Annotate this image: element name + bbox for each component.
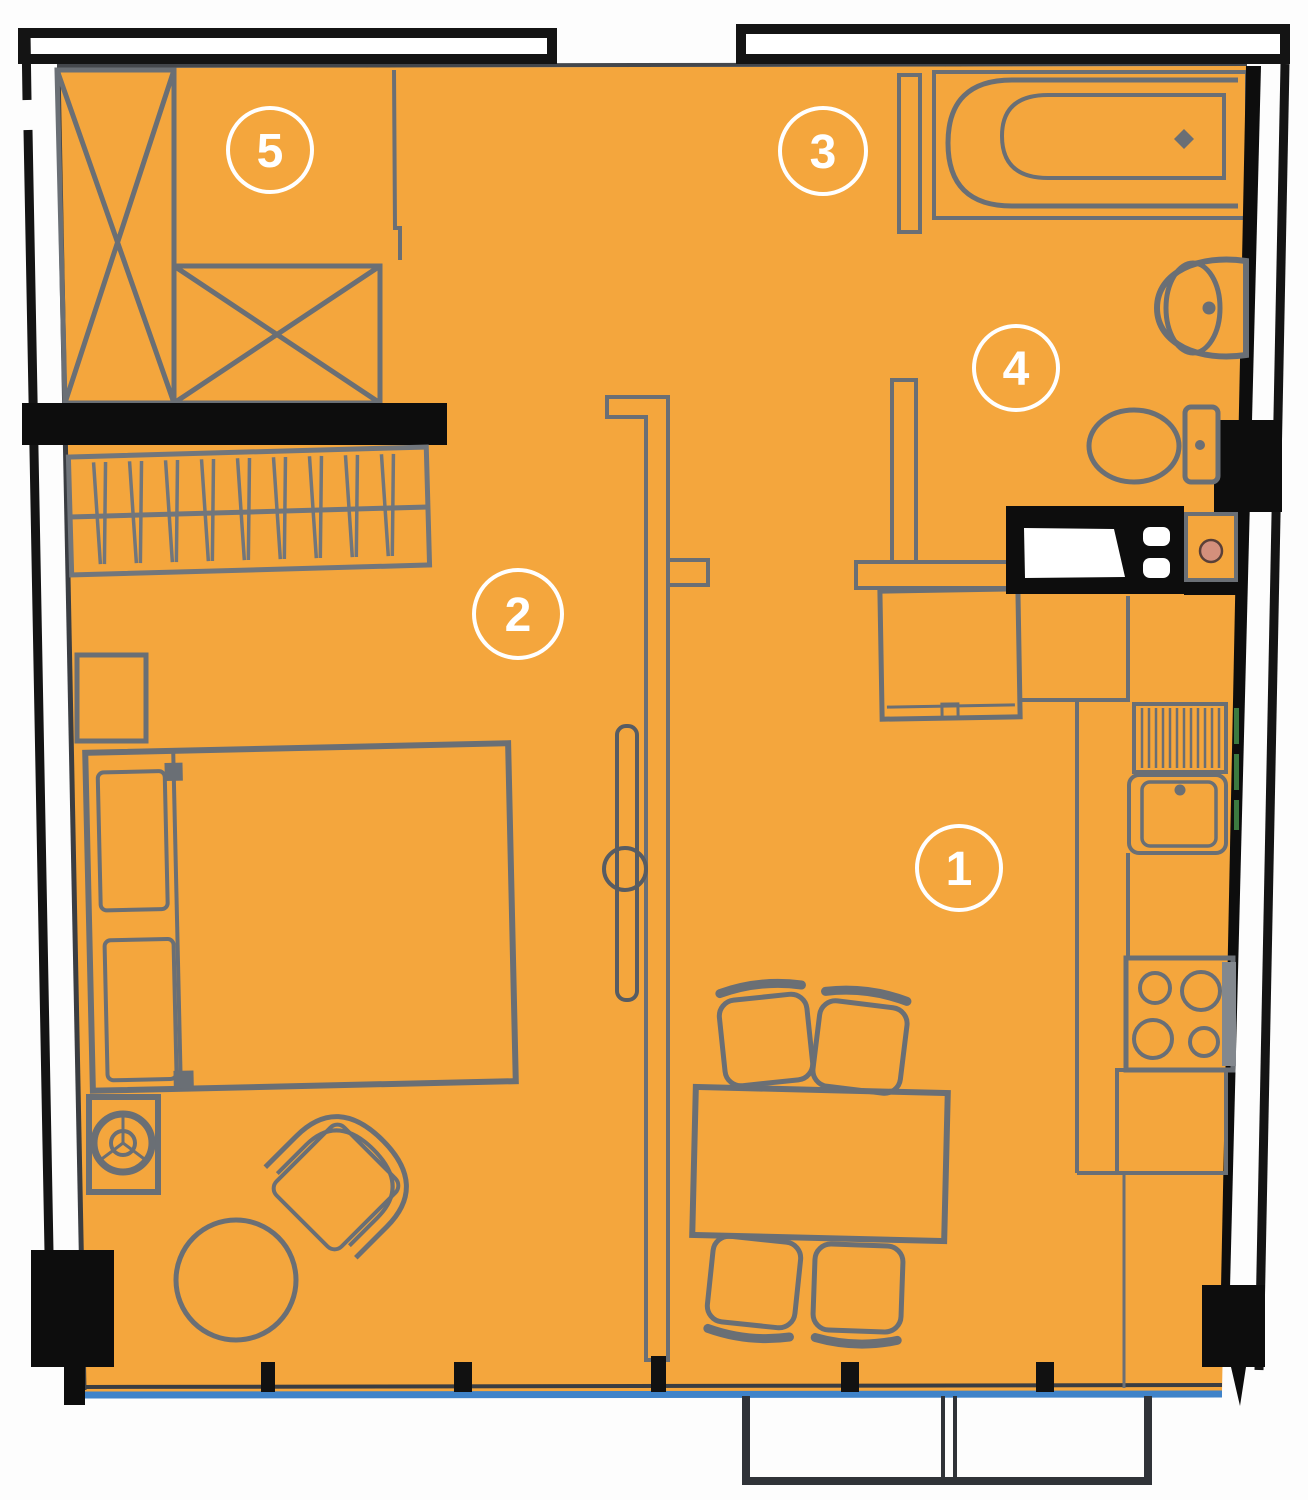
svg-text:2: 2 bbox=[505, 589, 532, 642]
svg-text:3: 3 bbox=[810, 126, 837, 179]
svg-text:4: 4 bbox=[1003, 343, 1030, 396]
svg-text:5: 5 bbox=[257, 125, 284, 178]
svg-text:1: 1 bbox=[946, 843, 973, 896]
